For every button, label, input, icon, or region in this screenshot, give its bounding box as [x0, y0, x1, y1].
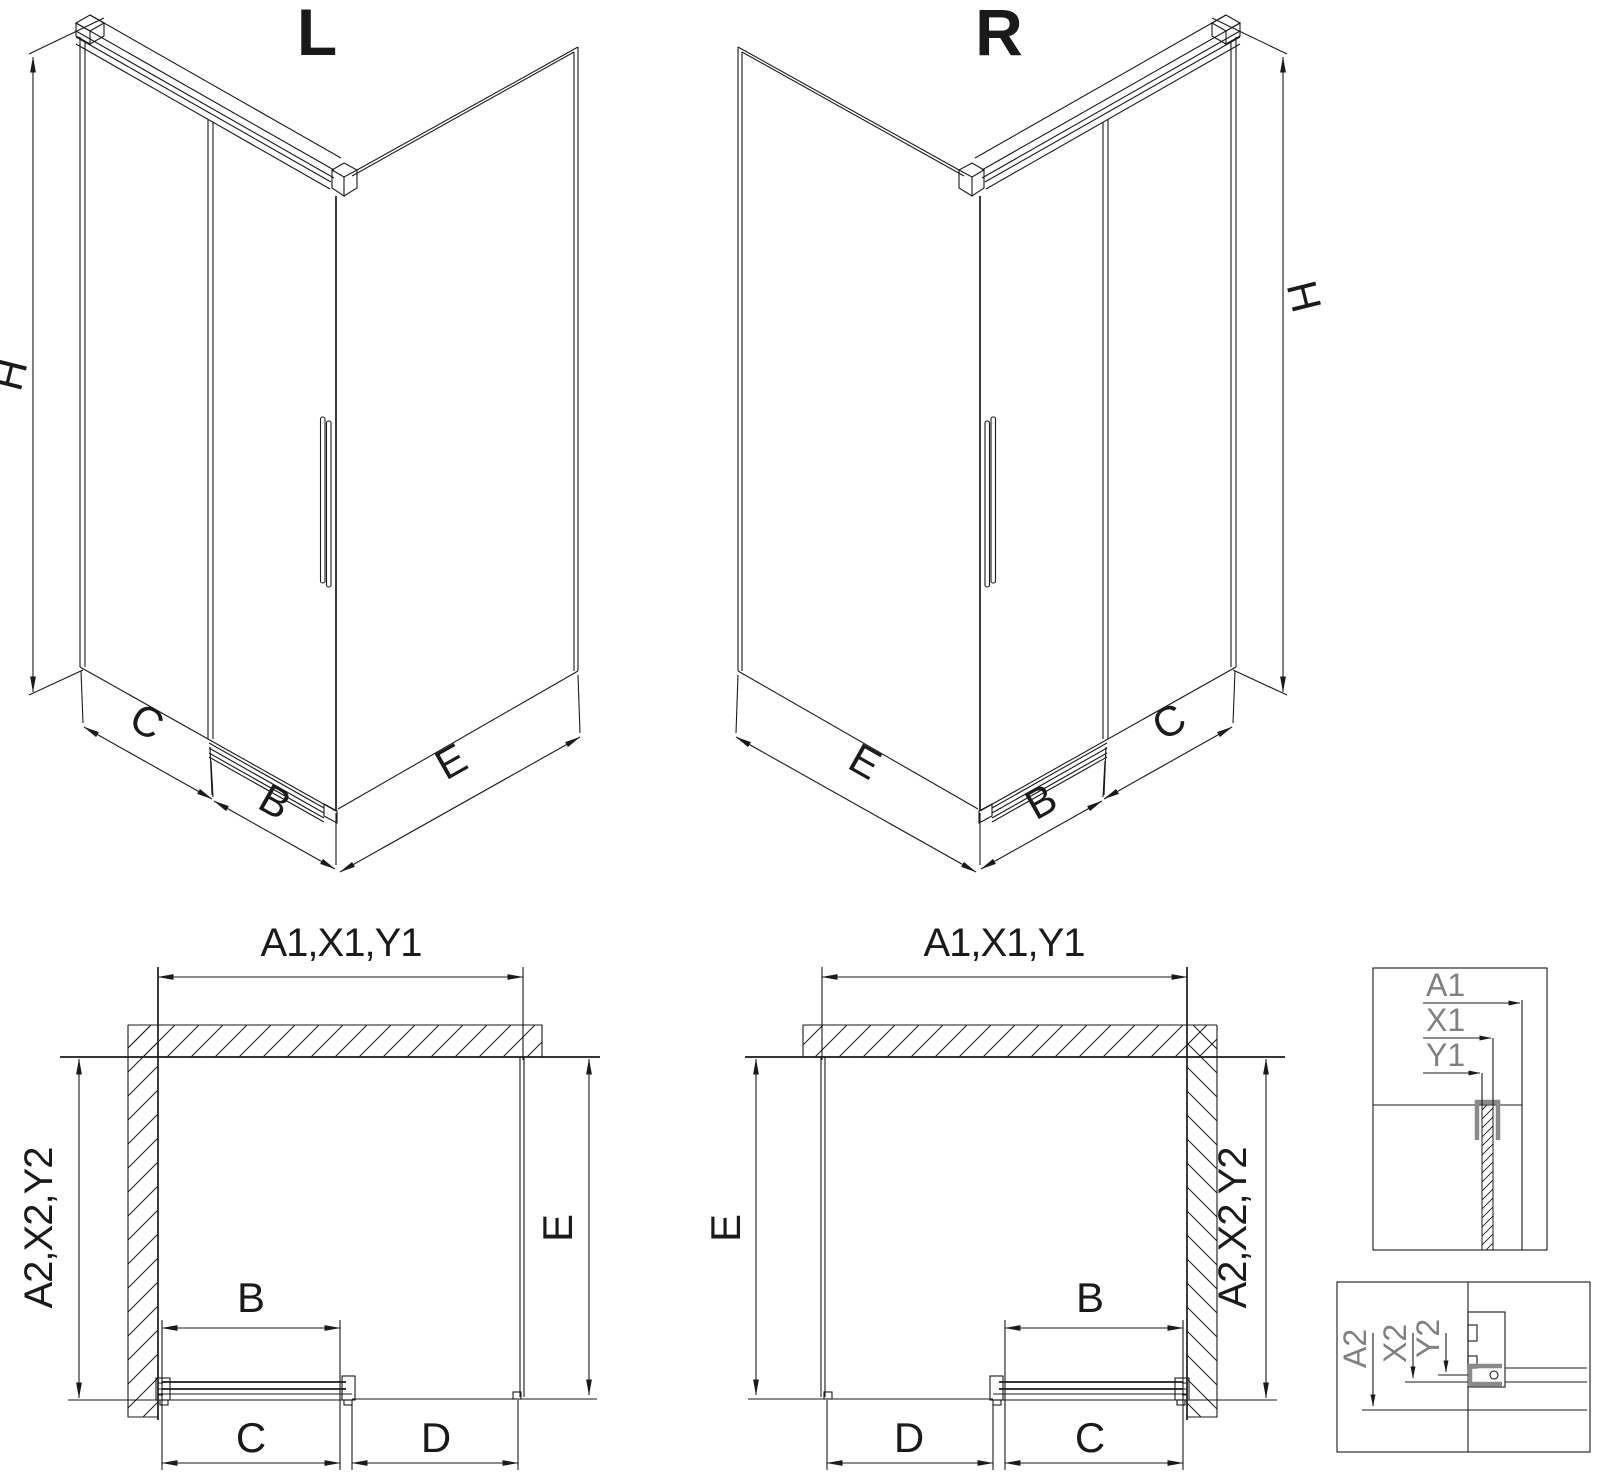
- detail-box-bottom-rail: A2 X2 Y2: [1337, 1282, 1590, 1452]
- dim-label-b-plan-l: B: [237, 1274, 265, 1321]
- dim-label-e-iso-r: E: [841, 734, 889, 789]
- detail-label-a1: A1: [1426, 967, 1465, 1003]
- dim-label-a1-plan-r: A1,X1,Y1: [923, 921, 1084, 965]
- wall-hatch-top-l: [128, 1025, 542, 1057]
- detail-label-y1: Y1: [1426, 1037, 1465, 1073]
- dim-label-h-iso-r: H: [1278, 276, 1331, 317]
- plan-view-l: A1,X1,Y1 A2,X2,Y2 E B C D: [17, 921, 600, 1470]
- detail-label-a2: A2: [1337, 1329, 1373, 1368]
- dim-label-c-iso-r: C: [1144, 693, 1194, 749]
- dim-label-e-plan-l: E: [534, 1214, 581, 1242]
- dim-label-e-iso-l: E: [427, 734, 475, 789]
- plan-view-r: A1,X1,Y1 A2,X2,Y2 E B C D: [702, 921, 1285, 1470]
- dim-label-c-plan-r: C: [1075, 1414, 1105, 1461]
- detail-box-glass-profile: A1 X1 Y1: [1373, 967, 1547, 1250]
- detail-label-x1: X1: [1426, 1002, 1465, 1038]
- isometric-view-r: R H C B E: [736, 0, 1331, 872]
- shower-enclosure-diagram: L H C B E R H C B E A1,X1,Y1 A2,X2,Y2 E …: [0, 0, 1600, 1474]
- wall-hatch-top-r: [803, 1025, 1217, 1057]
- view-title-l: L: [297, 0, 337, 69]
- dim-label-c-plan-l: C: [236, 1414, 266, 1461]
- dim-label-h-iso-l: H: [0, 354, 36, 395]
- dim-label-a2-plan-l: A2,X2,Y2: [17, 1147, 61, 1308]
- dim-label-a2-plan-r: A2,X2,Y2: [1211, 1147, 1255, 1308]
- dim-label-a1-plan-l: A1,X1,Y1: [260, 921, 421, 965]
- view-title-r: R: [975, 0, 1023, 69]
- detail-label-x2: X2: [1377, 1324, 1413, 1363]
- dim-label-e-plan-r: E: [702, 1214, 749, 1242]
- dim-label-d-plan-r: D: [894, 1414, 924, 1461]
- wall-hatch-side-l: [128, 1025, 158, 1417]
- roller-wheel-icon: [1490, 1371, 1498, 1379]
- dim-label-b-iso-l: B: [251, 774, 299, 829]
- technical-drawing-sheet: L H C B E R H C B E A1,X1,Y1 A2,X2,Y2 E …: [0, 0, 1600, 1474]
- isometric-view-l: L H C B E: [0, 0, 580, 872]
- dim-label-c-iso-l: C: [122, 693, 172, 749]
- dim-label-d-plan-l: D: [421, 1414, 451, 1461]
- dim-label-b-iso-r: B: [1017, 774, 1065, 829]
- dim-label-b-plan-r: B: [1076, 1274, 1104, 1321]
- rail-profile-icon: [1470, 1366, 1502, 1384]
- detail-label-y2: Y2: [1410, 1319, 1446, 1358]
